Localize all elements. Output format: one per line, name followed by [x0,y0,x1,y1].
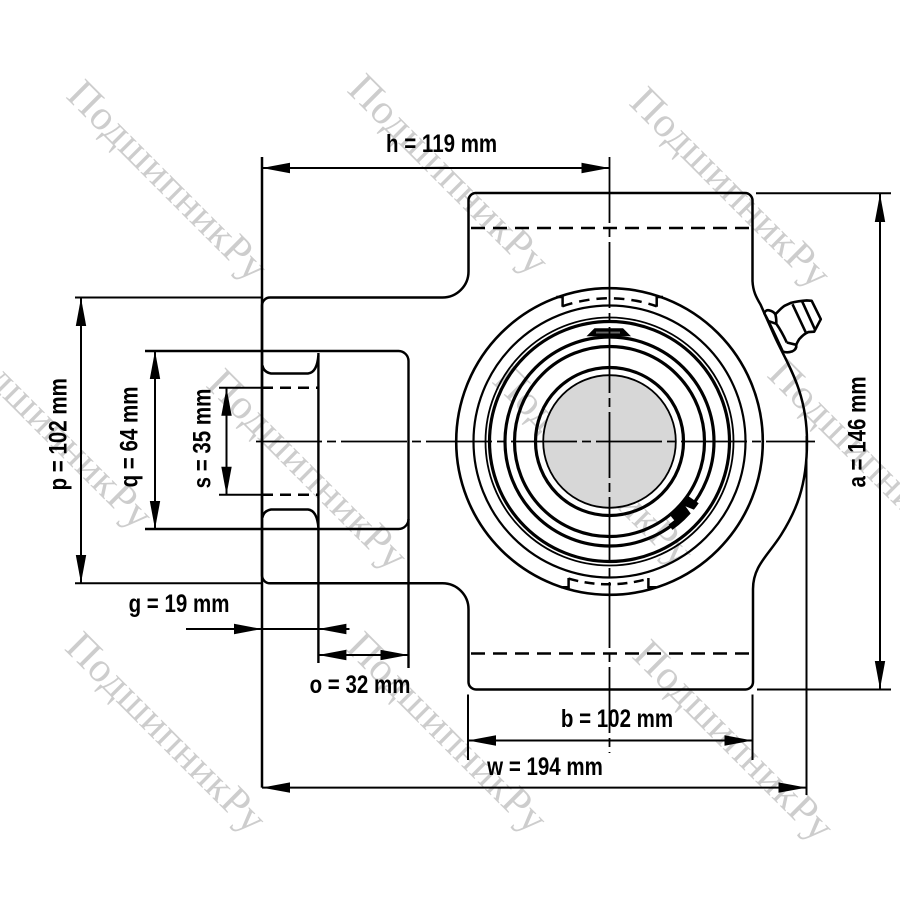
svg-text:s = 35 mm: s = 35 mm [188,389,216,489]
svg-text:p = 102 mm: p = 102 mm [44,378,72,490]
svg-text:w = 194 mm: w = 194 mm [486,752,603,780]
svg-text:q = 64 mm: q = 64 mm [115,387,143,488]
svg-text:o = 32 mm: o = 32 mm [310,670,411,698]
svg-text:h = 119 mm: h = 119 mm [386,129,497,157]
svg-text:g = 19 mm: g = 19 mm [129,589,230,617]
svg-text:b = 102 mm: b = 102 mm [561,704,673,732]
svg-text:a = 146 mm: a = 146 mm [843,376,871,487]
